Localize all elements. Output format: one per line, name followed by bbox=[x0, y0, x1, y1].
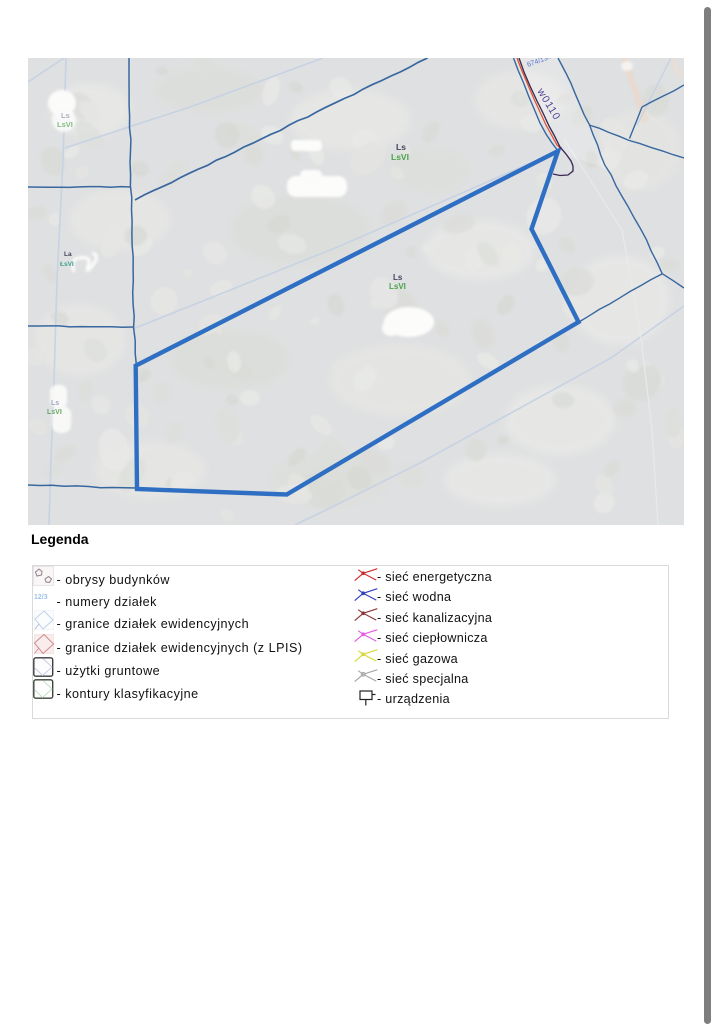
svg-text:Ls: Ls bbox=[61, 111, 70, 120]
svg-text:La: La bbox=[64, 251, 72, 258]
svg-text:Ls: Ls bbox=[51, 400, 59, 407]
svg-text:LsVI: LsVI bbox=[391, 152, 409, 162]
svg-text:Ls: Ls bbox=[396, 142, 406, 152]
svg-text:LsVI: LsVI bbox=[47, 409, 62, 416]
svg-text:LsVI: LsVI bbox=[389, 282, 406, 291]
svg-text:LsVI: LsVI bbox=[57, 120, 73, 129]
svg-text:ŁsVI: ŁsVI bbox=[60, 261, 74, 268]
svg-text:Ls: Ls bbox=[393, 273, 403, 282]
